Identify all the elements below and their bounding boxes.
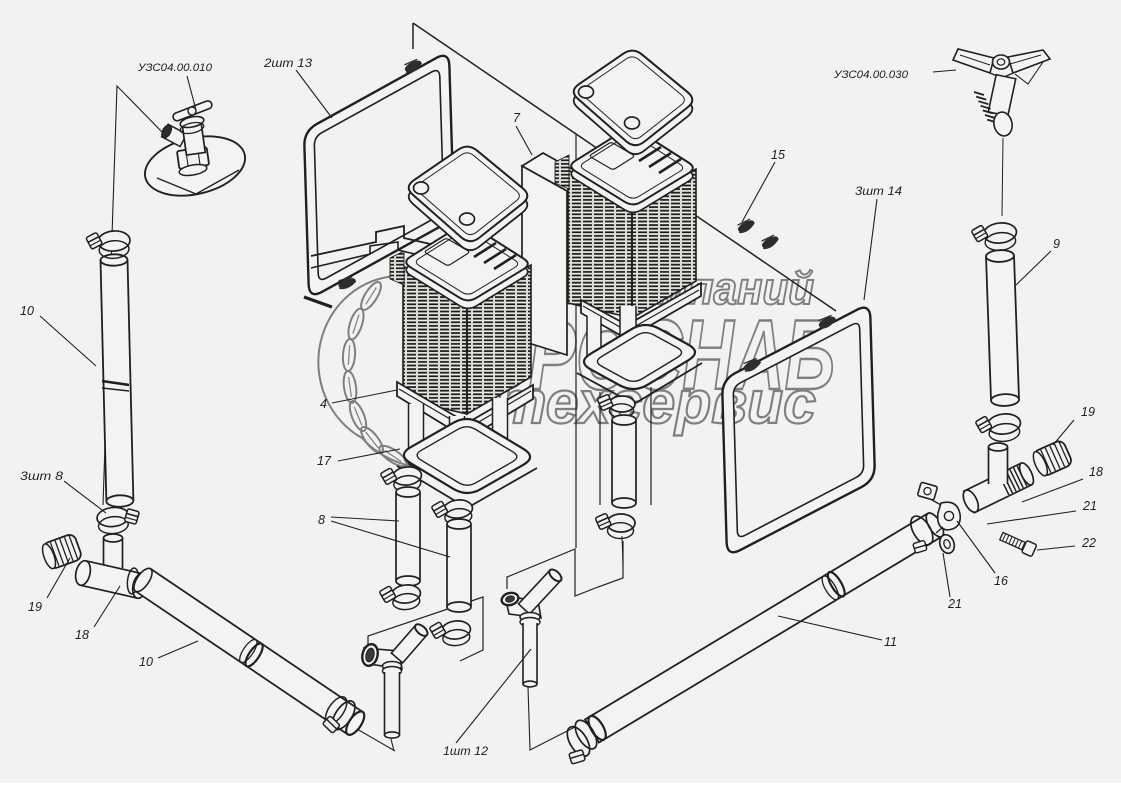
svg-text:19: 19 (1081, 405, 1095, 419)
svg-text:22: 22 (1081, 536, 1096, 550)
svg-text:17: 17 (317, 454, 332, 468)
svg-text:18: 18 (75, 628, 89, 642)
svg-text:3шт 8: 3шт 8 (20, 469, 63, 483)
svg-text:21: 21 (947, 597, 962, 611)
svg-text:21: 21 (1082, 499, 1097, 513)
svg-text:16: 16 (994, 574, 1008, 588)
svg-text:4: 4 (320, 397, 327, 411)
svg-text:УЗС04.00.010: УЗС04.00.010 (137, 62, 213, 74)
svg-text:7: 7 (513, 111, 521, 125)
svg-text:10: 10 (139, 655, 153, 669)
svg-text:1шт 12: 1шт 12 (443, 744, 488, 758)
svg-text:3шт 14: 3шт 14 (855, 184, 902, 198)
svg-text:10: 10 (20, 304, 34, 318)
svg-text:11: 11 (884, 635, 897, 649)
svg-text:18: 18 (1089, 465, 1103, 479)
svg-text:15: 15 (771, 148, 785, 162)
svg-text:УЗС04.00.030: УЗС04.00.030 (833, 69, 909, 81)
svg-text:8: 8 (318, 513, 325, 527)
svg-text:2шт 13: 2шт 13 (263, 56, 312, 70)
svg-text:19: 19 (28, 600, 42, 614)
svg-text:9: 9 (1053, 237, 1060, 251)
